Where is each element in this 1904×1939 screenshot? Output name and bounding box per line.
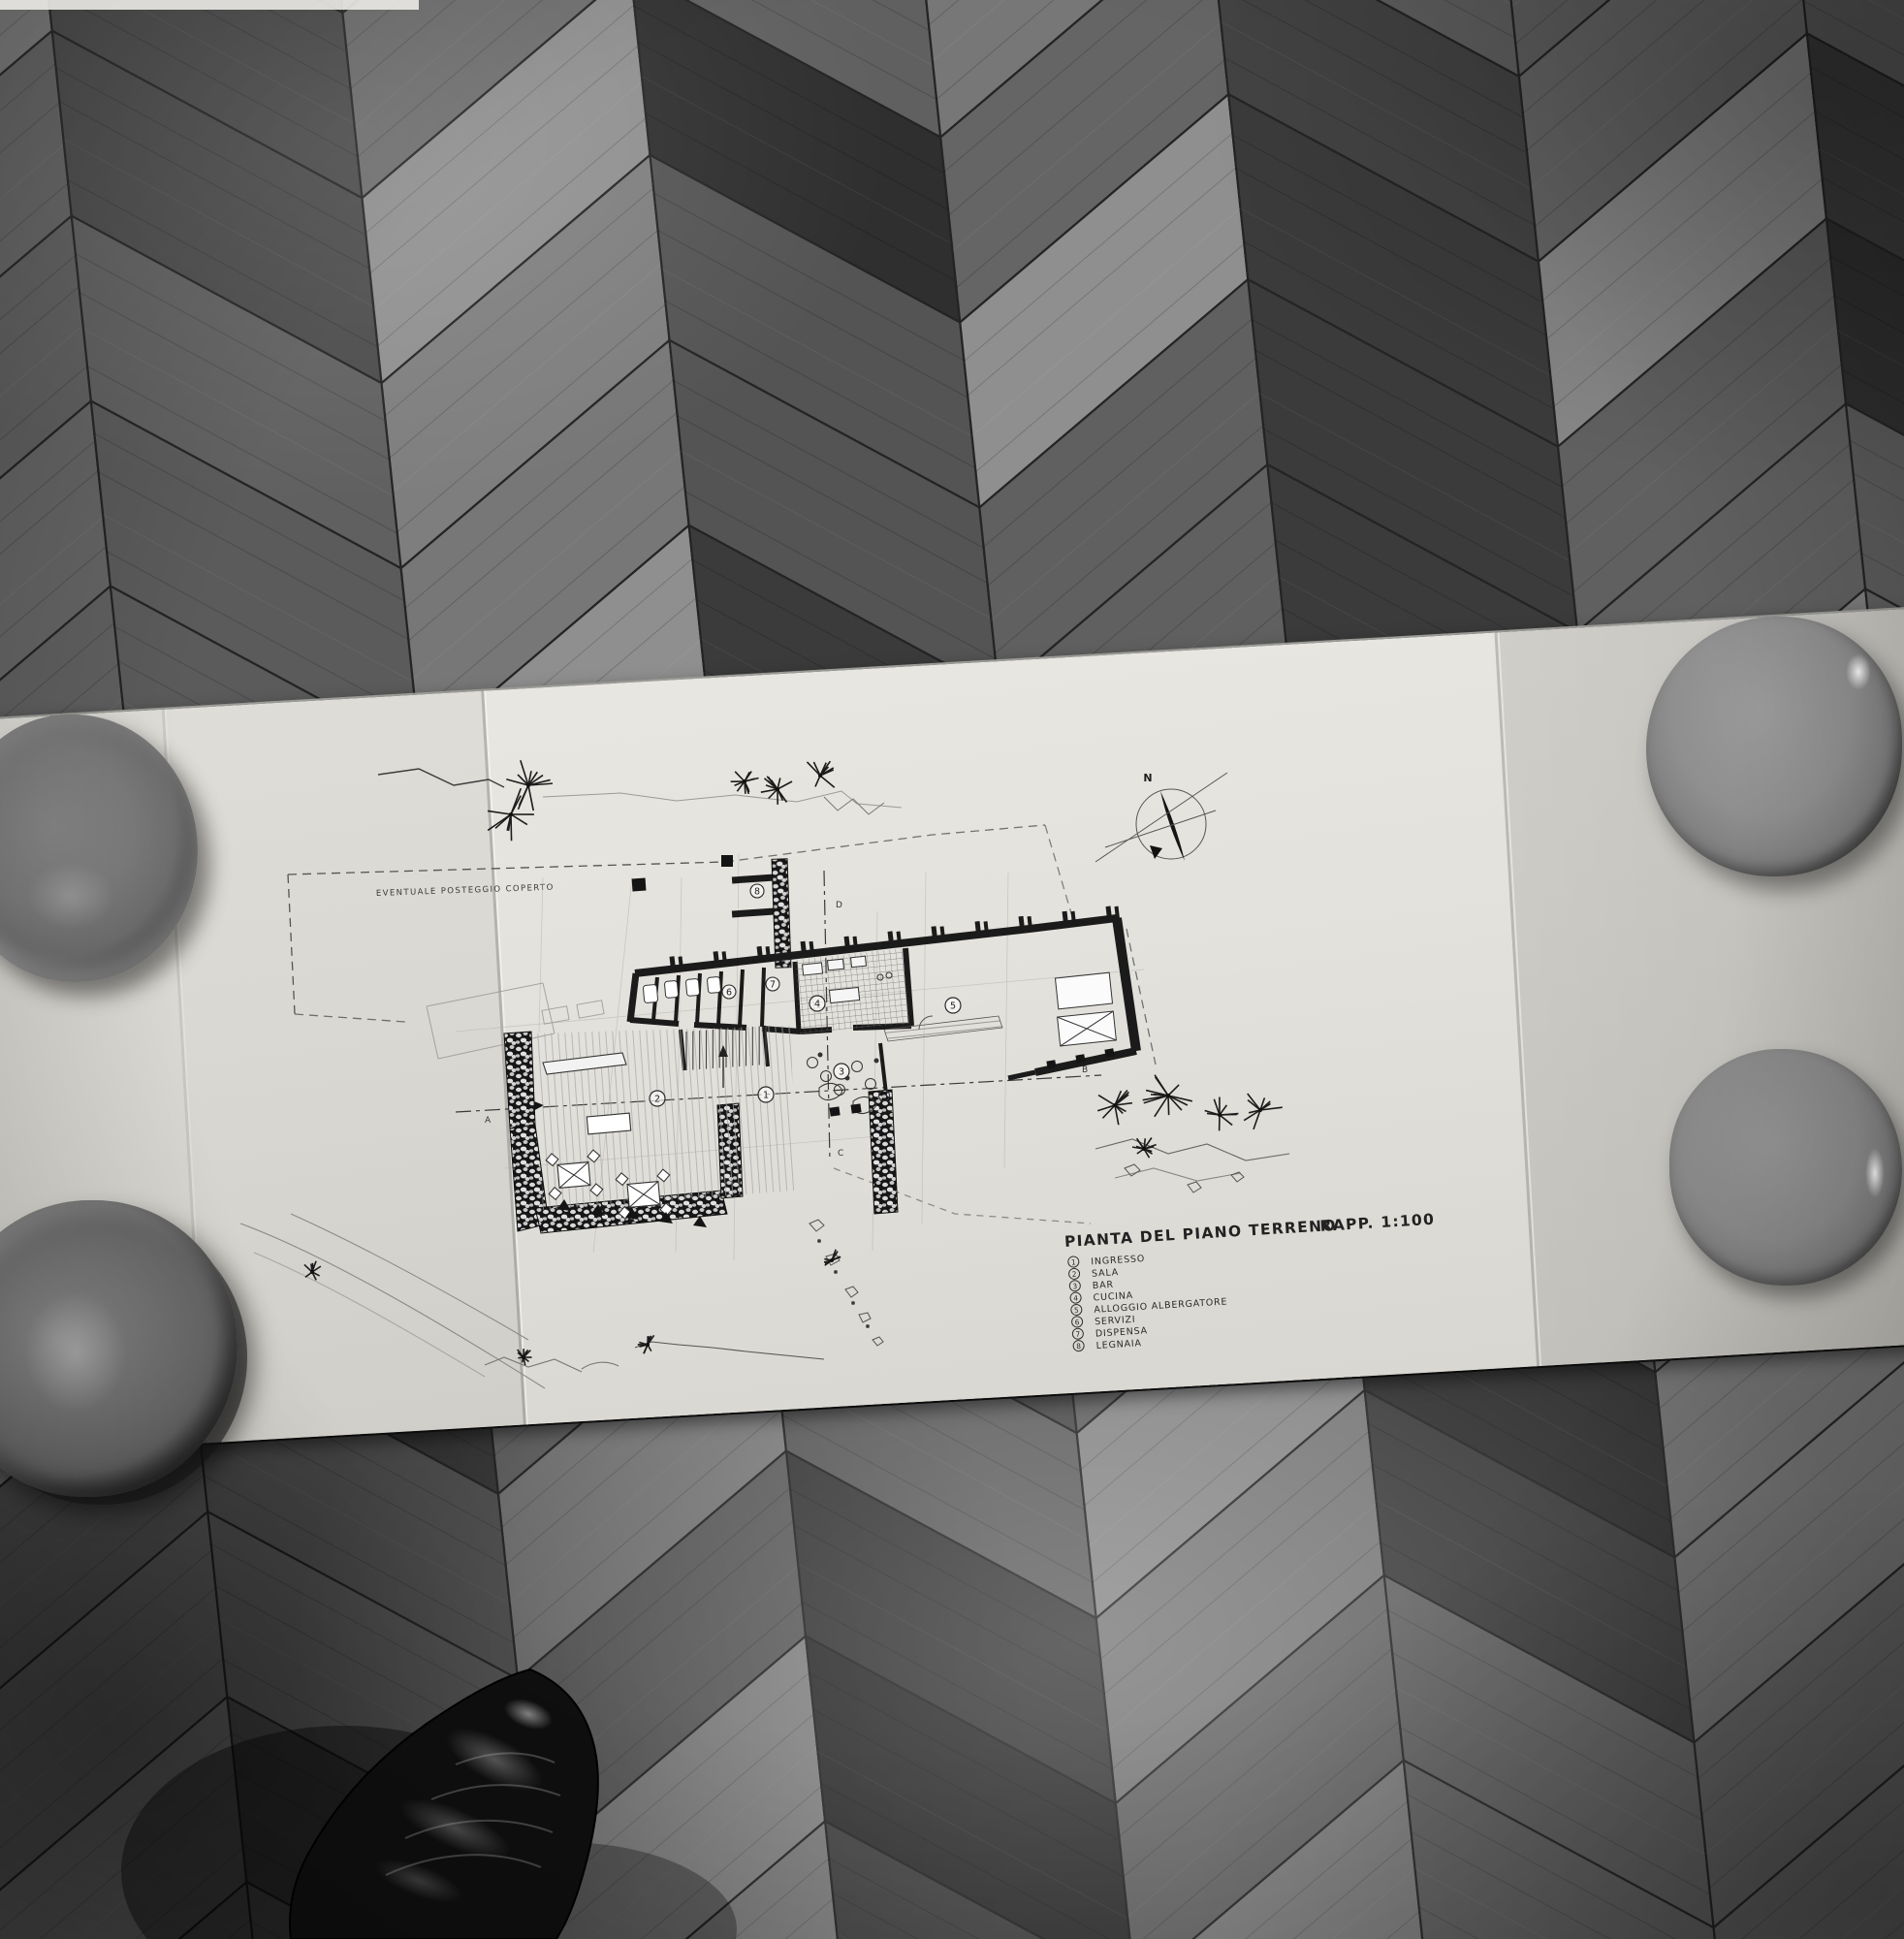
shoe-layer [0, 0, 1904, 1939]
film-edge [0, 0, 419, 10]
photograph: N EVENTUALE POSTEGGIO COPERTO D [0, 0, 1904, 1939]
